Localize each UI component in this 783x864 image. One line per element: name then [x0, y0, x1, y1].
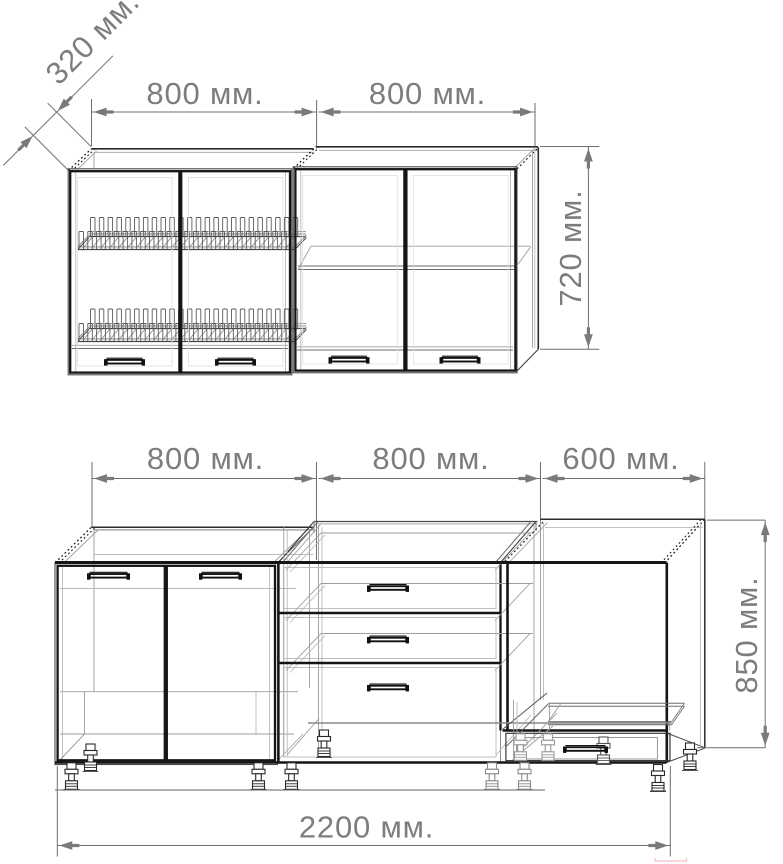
- svg-text:800 мм.: 800 мм.: [369, 76, 486, 111]
- svg-text:800 мм.: 800 мм.: [147, 441, 264, 476]
- svg-text:800 мм.: 800 мм.: [372, 441, 489, 476]
- svg-text:850 мм.: 850 мм.: [729, 576, 764, 693]
- svg-text:600 мм.: 600 мм.: [562, 441, 679, 476]
- svg-text:2200 мм.: 2200 мм.: [299, 810, 434, 845]
- svg-text:720 мм.: 720 мм.: [553, 189, 588, 306]
- svg-text:800 мм.: 800 мм.: [146, 76, 263, 111]
